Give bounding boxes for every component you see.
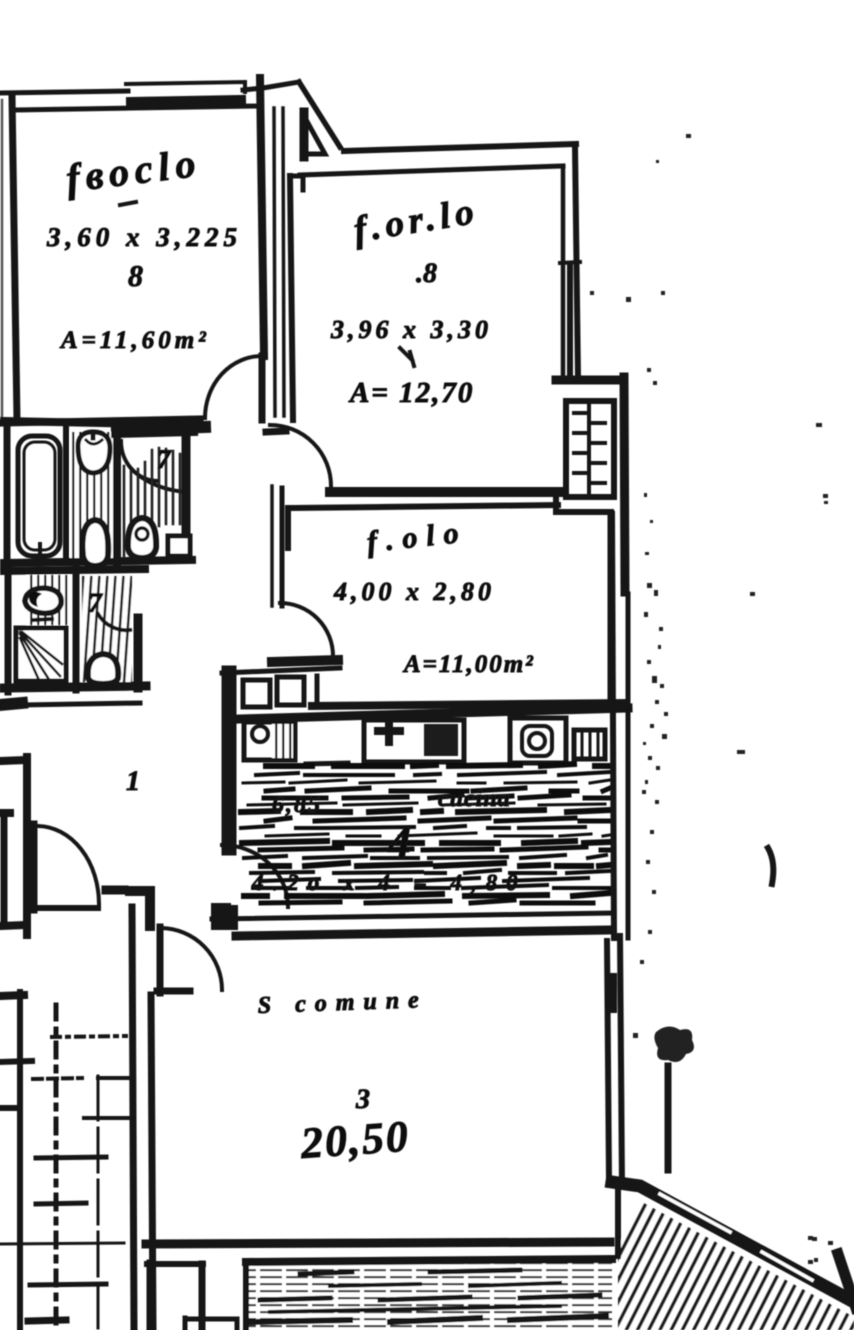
svg-text:1: 1: [126, 766, 140, 797]
svg-text:8: 8: [128, 260, 143, 293]
svg-text:7: 7: [157, 444, 172, 474]
svg-text:.8: .8: [416, 258, 437, 289]
svg-text:3,96 x 3,30: 3,96 x 3,30: [330, 315, 492, 344]
svg-text:S comune: S comune: [257, 987, 428, 1019]
svg-text:A= 12,70: A= 12,70: [348, 377, 474, 409]
svg-text:7: 7: [88, 588, 103, 619]
svg-text:3,60 x 3,225: 3,60 x 3,225: [46, 222, 242, 252]
svg-text:cucina: cucina: [438, 786, 511, 812]
svg-text:4: 4: [387, 817, 411, 868]
svg-text:3: 3: [355, 1084, 370, 1115]
svg-text:f.оlо: f.оlо: [365, 516, 469, 559]
svg-text:4.2о x 4 = 4,80: 4.2о x 4 = 4,80: [251, 870, 527, 895]
svg-text:4,00 x 2,80: 4,00 x 2,80: [333, 577, 495, 606]
svg-text:A=11,00m²: A=11,00m²: [402, 651, 535, 678]
svg-text:f.оr.lо: f.оr.lо: [351, 191, 481, 251]
svg-text:6,85: 6,85: [272, 792, 322, 818]
svg-text:fвосlо: fвосlо: [64, 140, 204, 201]
svg-text:20,50: 20,50: [298, 1111, 411, 1168]
svg-text:A=11,60m²: A=11,60m²: [59, 327, 210, 354]
